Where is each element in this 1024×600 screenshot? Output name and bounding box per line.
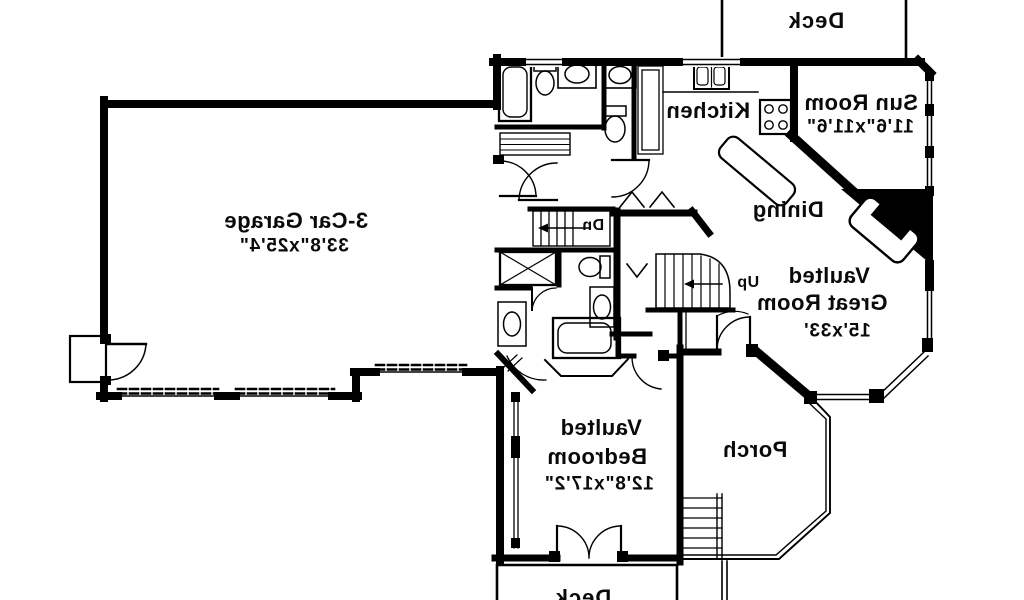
room-dims-sun-room: 11'6"x11'6" xyxy=(806,118,914,137)
master-bath-fixtures xyxy=(498,250,628,376)
room-label-dining: Dining xyxy=(752,199,823,221)
room-dims-great-room: 15'x33' xyxy=(803,322,870,341)
room-label-deck-top: Deck xyxy=(788,10,845,32)
sun-room-windows xyxy=(925,70,934,196)
stair-label-up: Up xyxy=(737,275,759,291)
room-label-sun-room: Sun Room xyxy=(804,92,918,114)
deck-bottom-outline xyxy=(497,561,727,600)
stove xyxy=(760,100,791,134)
room-label-bedroom-1: Vaulted xyxy=(560,417,642,439)
room-label-porch: Porch xyxy=(723,439,788,461)
room-label-bedroom-2: Bedroom xyxy=(547,446,647,468)
fireplace xyxy=(841,189,933,266)
room-label-deck-bottom: Deck xyxy=(555,587,612,600)
porch-outline xyxy=(682,399,830,559)
room-dims-garage: 33'8"x25'4" xyxy=(239,237,349,256)
floor-plan-page: Deck Sun Room 11'6"x11'6" Kitchen Dining… xyxy=(0,0,1024,600)
garage-side-door xyxy=(70,334,146,385)
stair-label-down: Dn xyxy=(582,218,604,234)
room-label-great-room-2: Great Room xyxy=(757,292,888,314)
room-label-great-room-1: Vaulted xyxy=(788,265,870,287)
french-doors xyxy=(549,526,628,562)
porch-steps xyxy=(682,498,722,548)
room-dims-bedroom: 12'8"x17'2" xyxy=(544,475,654,494)
room-label-garage: 3-Car Garage xyxy=(224,210,368,232)
upper-bath-fixtures xyxy=(497,61,636,200)
kitchen-fixtures xyxy=(634,62,798,209)
stairs-up xyxy=(656,254,730,308)
room-label-kitchen: Kitchen xyxy=(666,100,750,122)
